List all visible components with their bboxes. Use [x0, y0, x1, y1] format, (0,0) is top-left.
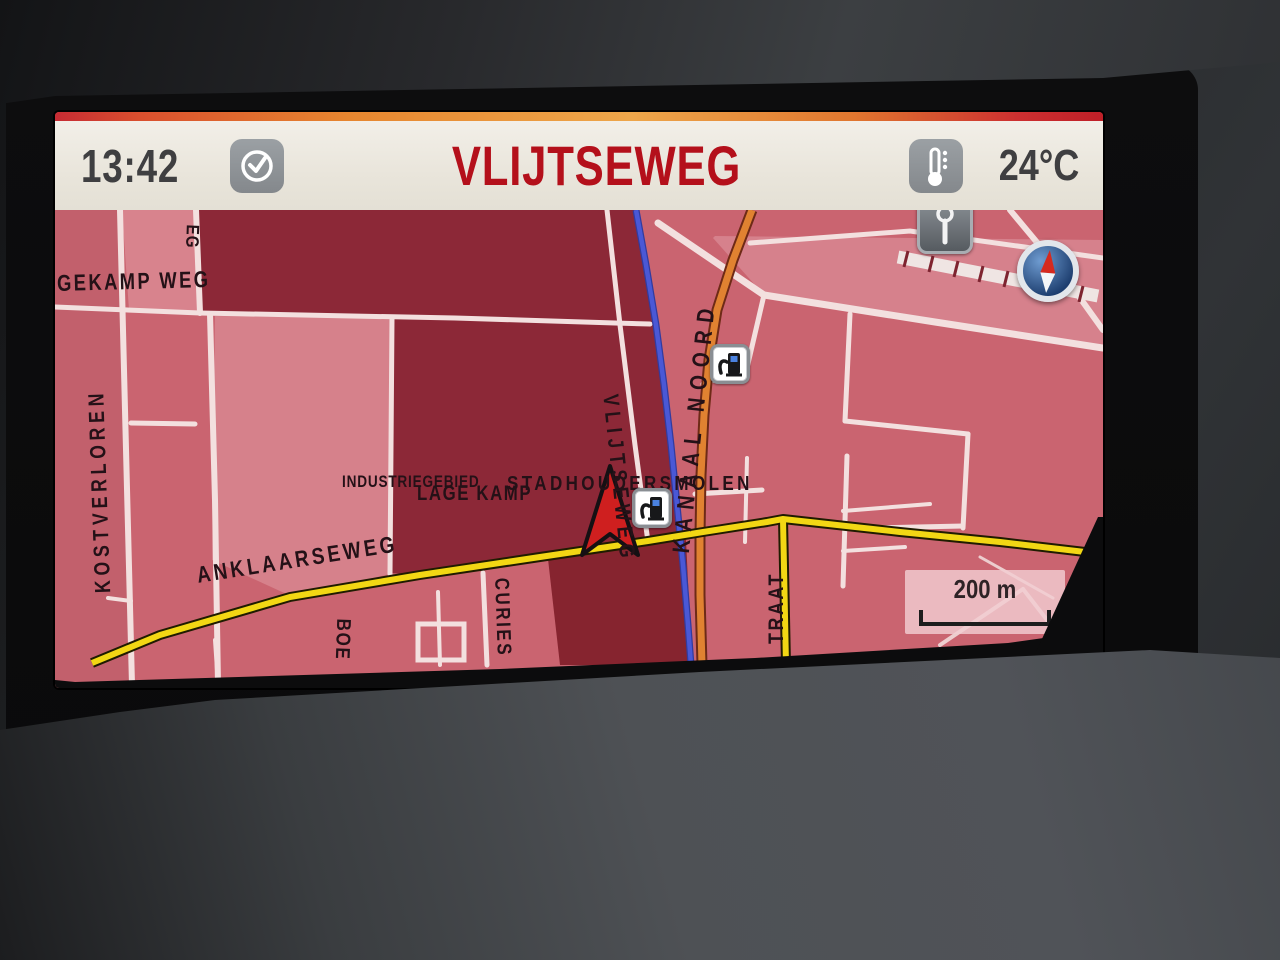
clock-icon	[230, 139, 284, 193]
screen-title: VLIJTSEWEG	[352, 133, 840, 198]
street-label-gekampweg: GEKAMP WEG	[57, 266, 211, 297]
street-label-curies: CURIES	[489, 570, 515, 664]
map-scale: 200 m	[905, 570, 1065, 634]
compass-icon	[1017, 240, 1079, 302]
clock-time: 13:42	[81, 139, 179, 193]
accent-stripe	[55, 112, 1103, 121]
map-canvas: GEKAMP WEG EG KOSTVERLOREN ANKLAARSEWEG …	[55, 210, 1103, 688]
poi-marker-icon	[917, 210, 973, 254]
scale-label: 200 m	[917, 574, 1053, 605]
dashboard: 13:42 VLIJTSEWEG 24°C	[0, 0, 1280, 960]
temperature-reading: 24°C	[998, 141, 1079, 191]
street-label-straat-partial: TRAAT	[765, 561, 789, 655]
thermometer-icon	[909, 139, 963, 193]
status-bar: 13:42 VLIJTSEWEG 24°C	[55, 121, 1103, 210]
fuel-station-icon	[710, 344, 750, 384]
nav-screen: 13:42 VLIJTSEWEG 24°C	[55, 112, 1103, 688]
fuel-station-icon	[632, 488, 672, 528]
street-label-boe-partial: BOE	[329, 605, 354, 674]
street-label-weg-partial: EG	[181, 211, 204, 263]
scale-bar	[919, 610, 1051, 626]
